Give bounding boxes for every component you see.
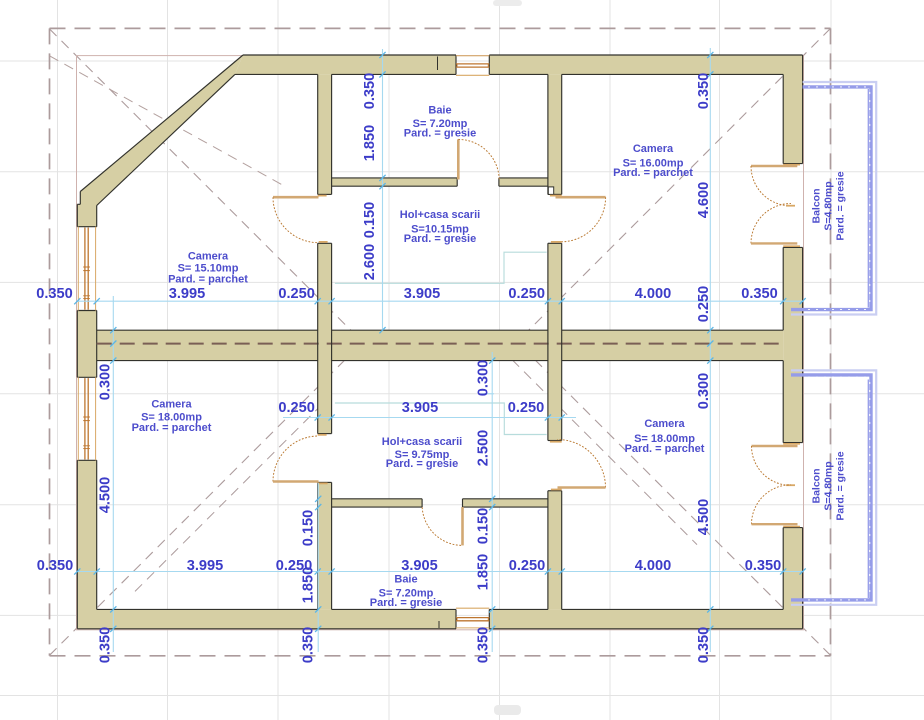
svg-text:Baie: Baie — [428, 105, 451, 117]
svg-text:0.250: 0.250 — [509, 558, 546, 574]
svg-text:Hol+casa scarii: Hol+casa scarii — [400, 209, 480, 221]
svg-text:1.850: 1.850 — [301, 567, 317, 604]
svg-text:Camera: Camera — [151, 399, 192, 411]
svg-text:0.250: 0.250 — [278, 400, 315, 416]
svg-text:3.995: 3.995 — [169, 286, 206, 302]
svg-text:0.250: 0.250 — [508, 286, 545, 302]
svg-text:0.300: 0.300 — [476, 360, 492, 397]
svg-text:Camera: Camera — [644, 418, 685, 430]
svg-text:3.995: 3.995 — [187, 558, 224, 574]
svg-text:2.500: 2.500 — [476, 430, 492, 467]
svg-text:0.350: 0.350 — [98, 627, 114, 664]
svg-text:0.350: 0.350 — [476, 627, 492, 664]
svg-text:0.350: 0.350 — [362, 73, 378, 110]
svg-text:0.350: 0.350 — [696, 627, 712, 664]
svg-text:0.250: 0.250 — [278, 286, 315, 302]
svg-text:S=4.80mp: S=4.80mp — [823, 181, 835, 230]
svg-text:4.000: 4.000 — [635, 558, 672, 574]
svg-text:0.350: 0.350 — [741, 286, 778, 302]
svg-text:4.600: 4.600 — [696, 182, 712, 219]
svg-text:Pard. = gresie: Pard. = gresie — [404, 233, 476, 245]
svg-text:Camera: Camera — [633, 143, 674, 155]
svg-text:4.500: 4.500 — [696, 499, 712, 536]
svg-text:Pard. = parchet: Pard. = parchet — [613, 167, 693, 179]
svg-text:Balcon: Balcon — [811, 188, 823, 223]
svg-text:0.300: 0.300 — [696, 373, 712, 410]
svg-text:0.300: 0.300 — [98, 364, 114, 401]
svg-text:Pard. = gresie: Pard. = gresie — [370, 597, 442, 609]
svg-text:Pard. = gresie: Pard. = gresie — [386, 458, 458, 470]
svg-text:Balcon: Balcon — [811, 468, 823, 503]
svg-text:3.905: 3.905 — [402, 400, 439, 416]
svg-text:0.150: 0.150 — [362, 202, 378, 239]
svg-text:0.150: 0.150 — [301, 510, 317, 547]
svg-text:3.905: 3.905 — [401, 558, 438, 574]
svg-text:1.850: 1.850 — [476, 554, 492, 591]
svg-text:4.500: 4.500 — [98, 477, 114, 514]
svg-text:4.000: 4.000 — [635, 286, 672, 302]
svg-text:1.850: 1.850 — [362, 125, 378, 162]
svg-text:0.350: 0.350 — [301, 627, 317, 664]
svg-text:0.250: 0.250 — [696, 286, 712, 323]
svg-text:Pard. = parchet: Pard. = parchet — [132, 422, 212, 434]
svg-text:Pard. = parchet: Pard. = parchet — [625, 443, 705, 455]
svg-text:Pard. = parchet: Pard. = parchet — [168, 274, 248, 286]
svg-text:Pard. = gresie: Pard. = gresie — [835, 451, 847, 520]
svg-text:Hol+casa scarii: Hol+casa scarii — [382, 436, 462, 448]
svg-text:0.150: 0.150 — [476, 508, 492, 545]
svg-text:0.350: 0.350 — [37, 558, 74, 574]
svg-text:0.250: 0.250 — [508, 400, 545, 416]
svg-text:0.350: 0.350 — [696, 73, 712, 110]
svg-text:Pard. = gresie: Pard. = gresie — [835, 171, 847, 240]
svg-text:Camera: Camera — [188, 251, 229, 263]
svg-text:0.350: 0.350 — [36, 286, 73, 302]
svg-text:Pard. = gresie: Pard. = gresie — [404, 128, 476, 140]
svg-text:S=4.80mp: S=4.80mp — [823, 461, 835, 510]
svg-text:2.600: 2.600 — [362, 244, 378, 281]
svg-text:0.350: 0.350 — [745, 558, 782, 574]
svg-text:3.905: 3.905 — [404, 286, 441, 302]
svg-text:Baie: Baie — [394, 574, 417, 586]
